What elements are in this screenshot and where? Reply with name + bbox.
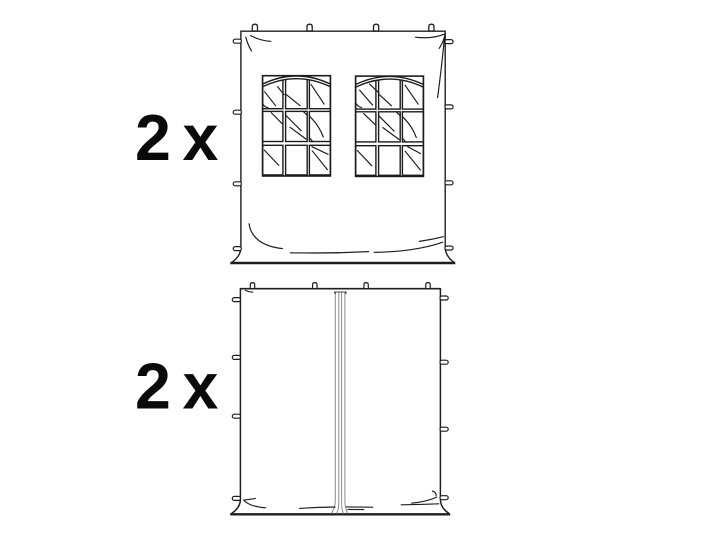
svg-text:2: 2 (135, 351, 171, 423)
svg-text:x: x (183, 102, 219, 174)
svg-text:x: x (183, 351, 219, 423)
svg-text:2: 2 (135, 102, 171, 174)
